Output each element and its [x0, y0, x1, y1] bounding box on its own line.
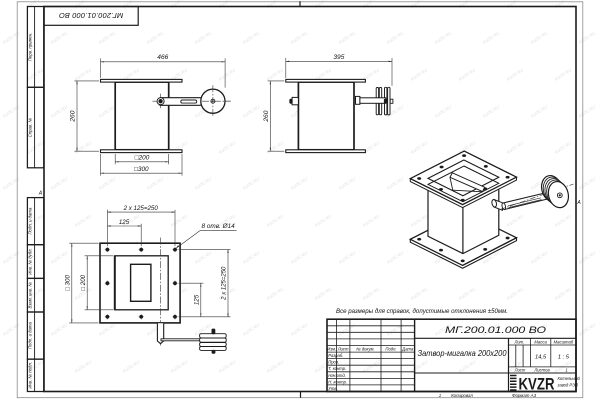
svg-text:завод РЭП: завод РЭП: [557, 383, 578, 388]
svg-text:2 x 125=250: 2 x 125=250: [123, 205, 159, 212]
svg-text:Пров.: Пров.: [328, 360, 339, 365]
svg-text:□200: □200: [135, 155, 150, 162]
svg-text:Нач.отд.: Нач.отд.: [328, 373, 346, 378]
svg-text:А: А: [576, 200, 581, 206]
svg-text:Лист: Лист: [514, 367, 526, 372]
svg-text:□ 200: □ 200: [80, 274, 87, 290]
svg-text:1 : 5: 1 : 5: [558, 355, 570, 361]
svg-text:Инв. № подл.: Инв. № подл.: [28, 362, 33, 389]
svg-text:Масштаб: Масштаб: [554, 339, 574, 344]
svg-text:Лист: Лист: [337, 347, 349, 352]
svg-text:260: 260: [70, 110, 77, 122]
svg-text:Дата: Дата: [401, 347, 414, 352]
svg-text:125: 125: [193, 294, 200, 305]
svg-text:2 x 125=250: 2 x 125=250: [222, 266, 228, 301]
svg-text:KVZR: KVZR: [519, 375, 555, 394]
svg-text:Листов: Листов: [533, 367, 550, 372]
svg-text:Разраб.: Разраб.: [328, 353, 343, 358]
svg-text:14,5: 14,5: [535, 355, 547, 361]
svg-text:Т. контр.: Т. контр.: [328, 366, 346, 371]
svg-text:1: 1: [565, 367, 567, 372]
svg-text:Справ. №: Справ. №: [28, 117, 33, 137]
svg-text:□300: □300: [134, 166, 149, 173]
svg-text:395: 395: [333, 54, 344, 61]
svg-text:Инв. № дубл.: Инв. № дубл.: [28, 248, 33, 274]
svg-text:Подп.: Подп.: [385, 347, 396, 352]
svg-text:Затвор-мигалка 200х200: Затвор-мигалка 200х200: [418, 348, 507, 358]
svg-text:Взам. инв. №: Взам. инв. №: [28, 282, 33, 309]
svg-text:Копировал: Копировал: [451, 393, 473, 398]
svg-text:Утв.: Утв.: [328, 386, 338, 391]
svg-text:Подп. и дата: Подп. и дата: [28, 322, 33, 350]
svg-text:Н. контр.: Н. контр.: [328, 379, 347, 384]
svg-text:□ 300: □ 300: [64, 275, 71, 291]
svg-text:Подп. и дата: Подп. и дата: [28, 207, 33, 235]
svg-text:А: А: [38, 191, 43, 197]
svg-text:Лит.: Лит.: [513, 339, 524, 344]
svg-text:Изм.: Изм.: [327, 347, 336, 352]
svg-text:466: 466: [157, 54, 168, 61]
svg-text:125: 125: [119, 219, 130, 226]
svg-text:МГ.200.01.000 ВО: МГ.200.01.000 ВО: [59, 11, 123, 20]
svg-text:Котельный: Котельный: [558, 376, 581, 381]
svg-text:МГ.200.01.000 ВО: МГ.200.01.000 ВО: [445, 325, 547, 336]
svg-text:№ докум.: № докум.: [356, 347, 374, 352]
svg-text:Формат А3: Формат А3: [512, 393, 537, 398]
svg-text:8 отв. Ø14: 8 отв. Ø14: [202, 223, 236, 230]
svg-text:Перв. примен.: Перв. примен.: [28, 33, 33, 62]
svg-text:Масса: Масса: [534, 339, 547, 344]
svg-text:Все размеры для справок, допус: Все размеры для справок, допустимые откл…: [336, 307, 508, 315]
svg-text:260: 260: [263, 110, 270, 122]
